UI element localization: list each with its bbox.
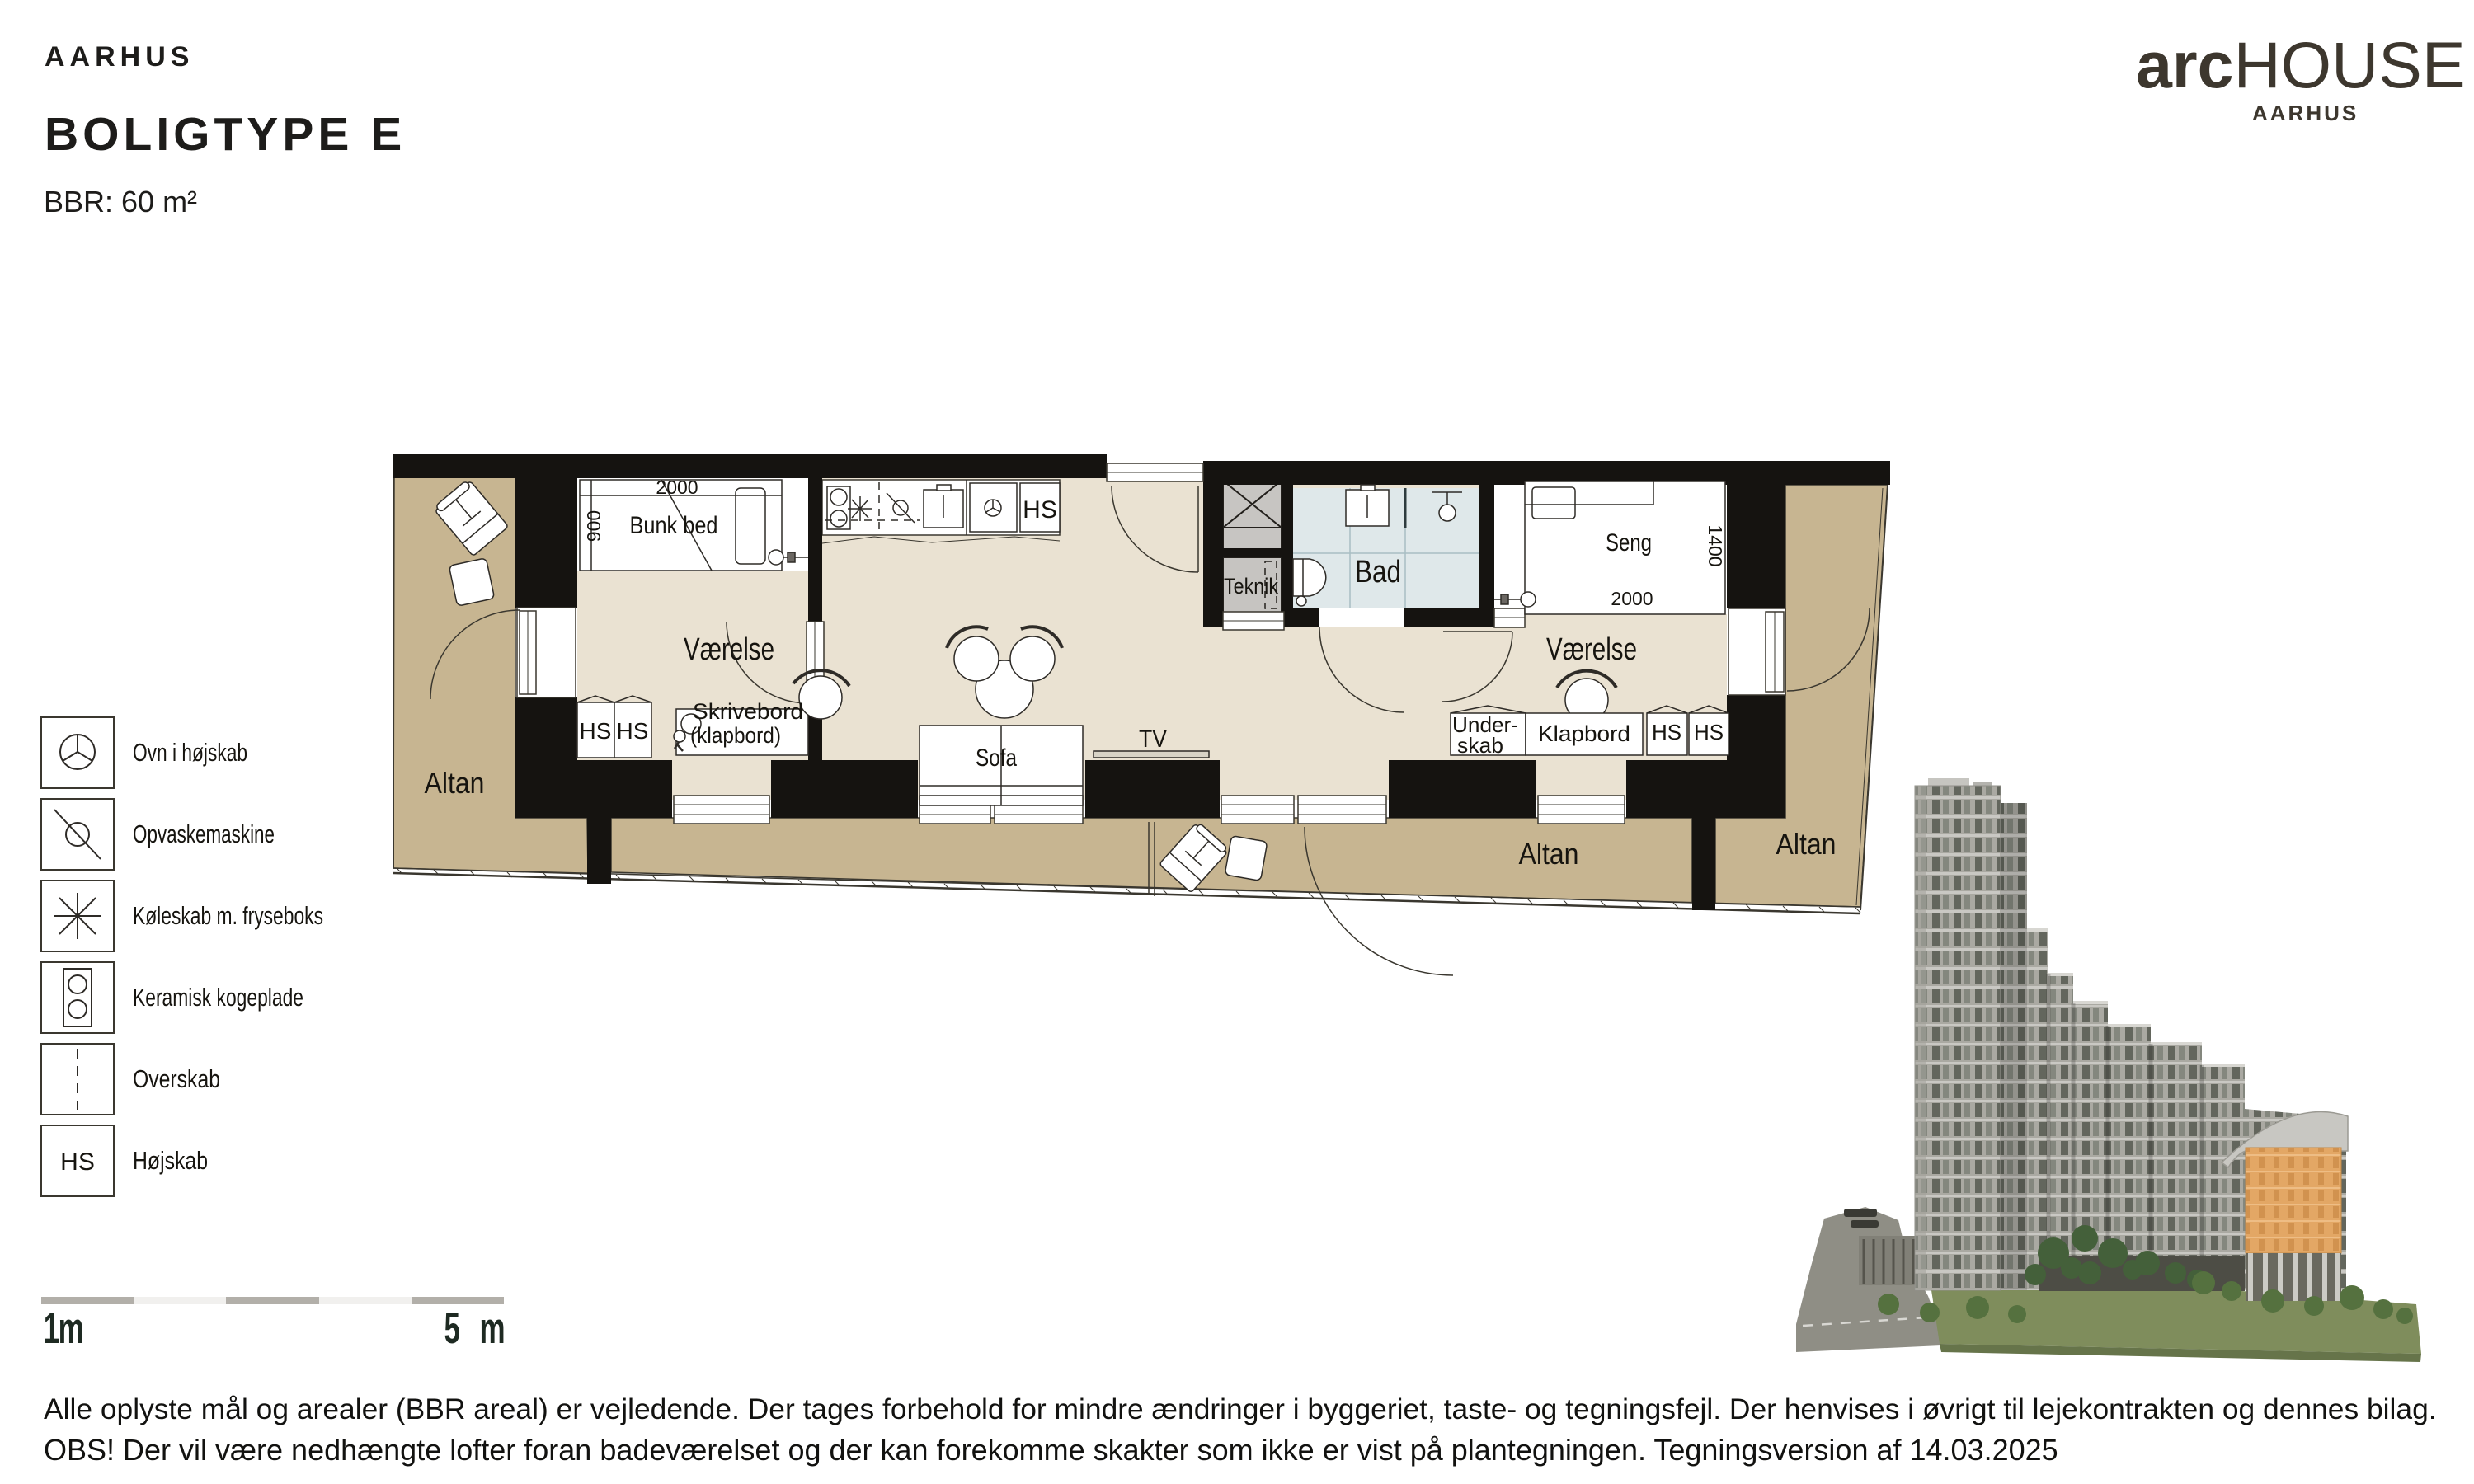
- svg-text:1400: 1400: [1705, 524, 1726, 566]
- svg-text:(klapbord): (klapbord): [690, 723, 781, 748]
- svg-text:HS: HS: [1023, 496, 1057, 524]
- svg-text:Opvaskemaskine: Opvaskemaskine: [133, 819, 275, 848]
- svg-text:Keramisk kogeplade: Keramisk kogeplade: [133, 983, 303, 1012]
- svg-text:HS: HS: [580, 718, 612, 744]
- svg-text:HS: HS: [617, 718, 649, 744]
- svg-text:Overskab: Overskab: [133, 1064, 220, 1093]
- svg-text:2000: 2000: [1611, 588, 1653, 609]
- svg-text:Skrivebord: Skrivebord: [693, 699, 803, 724]
- svg-text:5: 5: [444, 1303, 460, 1353]
- svg-text:Altan: Altan: [1519, 837, 1579, 871]
- svg-text:Sofa: Sofa: [976, 744, 1017, 772]
- svg-text:Altan: Altan: [1776, 827, 1837, 861]
- svg-text:m: m: [479, 1303, 505, 1353]
- svg-text:Klapbord: Klapbord: [1538, 721, 1630, 746]
- svg-text:TV: TV: [1139, 726, 1167, 753]
- svg-text:Bunk bed: Bunk bed: [630, 512, 718, 539]
- svg-text:Seng: Seng: [1606, 529, 1652, 556]
- svg-text:Bad: Bad: [1355, 555, 1401, 589]
- svg-text:skab: skab: [1457, 733, 1503, 758]
- svg-text:Værelse: Værelse: [1546, 632, 1637, 667]
- svg-text:Køleskab m. fryseboks: Køleskab m. fryseboks: [133, 901, 323, 930]
- svg-text:1: 1: [44, 1303, 59, 1353]
- svg-text:Højskab: Højskab: [133, 1146, 208, 1175]
- svg-text:m: m: [59, 1303, 84, 1353]
- svg-text:HS: HS: [1652, 720, 1681, 744]
- svg-text:Altan: Altan: [425, 766, 485, 800]
- svg-text:900: 900: [583, 510, 604, 542]
- svg-text:HS: HS: [60, 1148, 95, 1176]
- svg-text:Ovn i højskab: Ovn i højskab: [133, 738, 247, 767]
- svg-text:HS: HS: [1694, 720, 1724, 744]
- svg-text:Værelse: Værelse: [684, 632, 774, 667]
- svg-text:2000: 2000: [656, 477, 698, 498]
- svg-text:Teknik: Teknik: [1224, 574, 1278, 599]
